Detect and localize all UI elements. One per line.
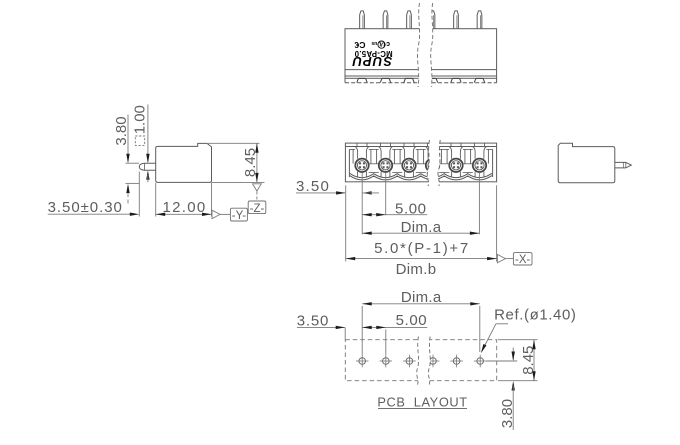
- svg-text:5.0*(P-1)+7: 5.0*(P-1)+7: [374, 240, 470, 257]
- svg-text:PCB LAYOUT: PCB LAYOUT: [377, 395, 467, 410]
- svg-text:5.00: 5.00: [396, 312, 428, 329]
- svg-text:3.50±0.30: 3.50±0.30: [48, 199, 123, 216]
- svg-text:12.00: 12.00: [162, 199, 206, 216]
- svg-text:3.50: 3.50: [297, 312, 329, 329]
- svg-text:Ref.(ø1.40): Ref.(ø1.40): [494, 307, 576, 324]
- svg-text:us: us: [371, 40, 377, 46]
- svg-text:-X-: -X-: [515, 254, 531, 266]
- svg-text:-Y-: -Y-: [232, 210, 246, 222]
- svg-text:3.80: 3.80: [499, 399, 516, 428]
- svg-text:-Z-: -Z-: [250, 203, 265, 215]
- svg-text:1.00: 1.00: [132, 105, 149, 134]
- svg-text:c: c: [386, 40, 390, 47]
- svg-text:Dim.b: Dim.b: [396, 261, 437, 278]
- svg-text:C€: C€: [354, 40, 365, 50]
- svg-text:UL: UL: [378, 41, 385, 47]
- svg-text:Dim.a: Dim.a: [401, 289, 442, 306]
